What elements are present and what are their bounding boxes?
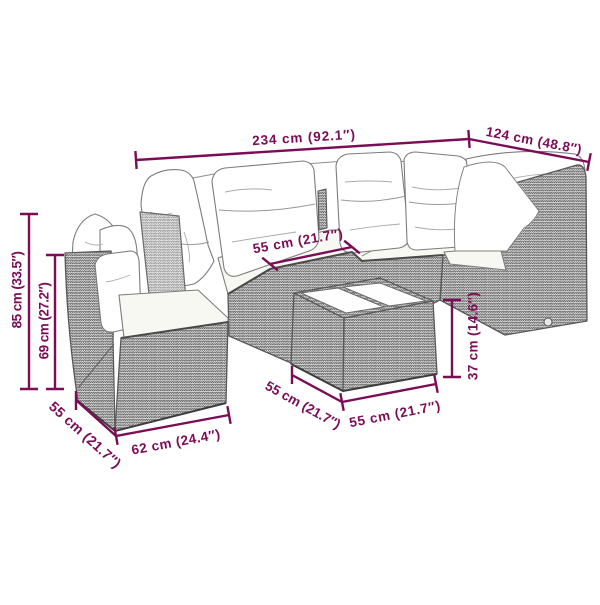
svg-text:85 cm (33.5″): 85 cm (33.5″) [10, 252, 25, 329]
svg-text:37 cm (14.6″): 37 cm (14.6″) [466, 292, 481, 380]
svg-text:69 cm (27.2″): 69 cm (27.2″) [37, 283, 52, 360]
